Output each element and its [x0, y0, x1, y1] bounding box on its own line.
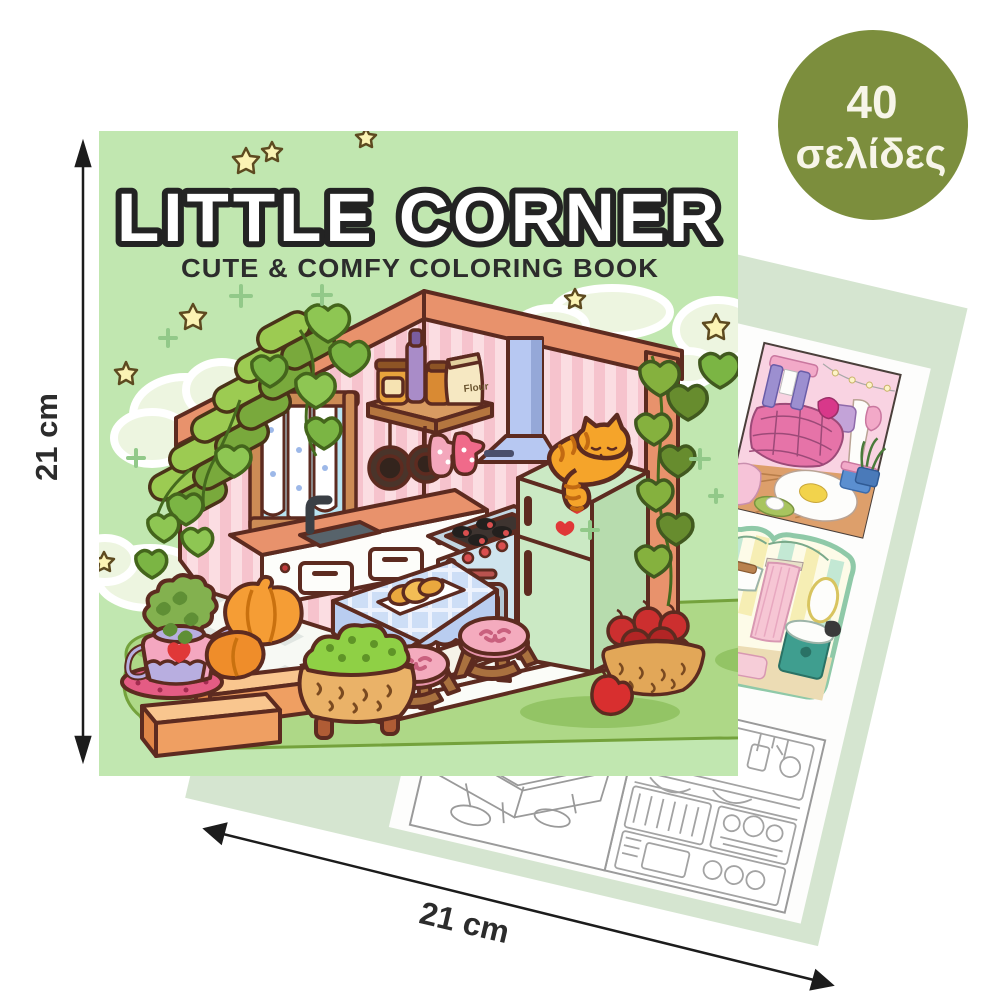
svg-text:40: 40 [846, 76, 897, 128]
svg-text:LITTLE CORNER: LITTLE CORNER [117, 179, 723, 256]
svg-text:σελίδες: σελίδες [796, 130, 947, 177]
svg-text:CUTE & COMFY COLORING BOOK: CUTE & COMFY COLORING BOOK [181, 253, 659, 283]
svg-text:21 cm: 21 cm [29, 393, 64, 481]
